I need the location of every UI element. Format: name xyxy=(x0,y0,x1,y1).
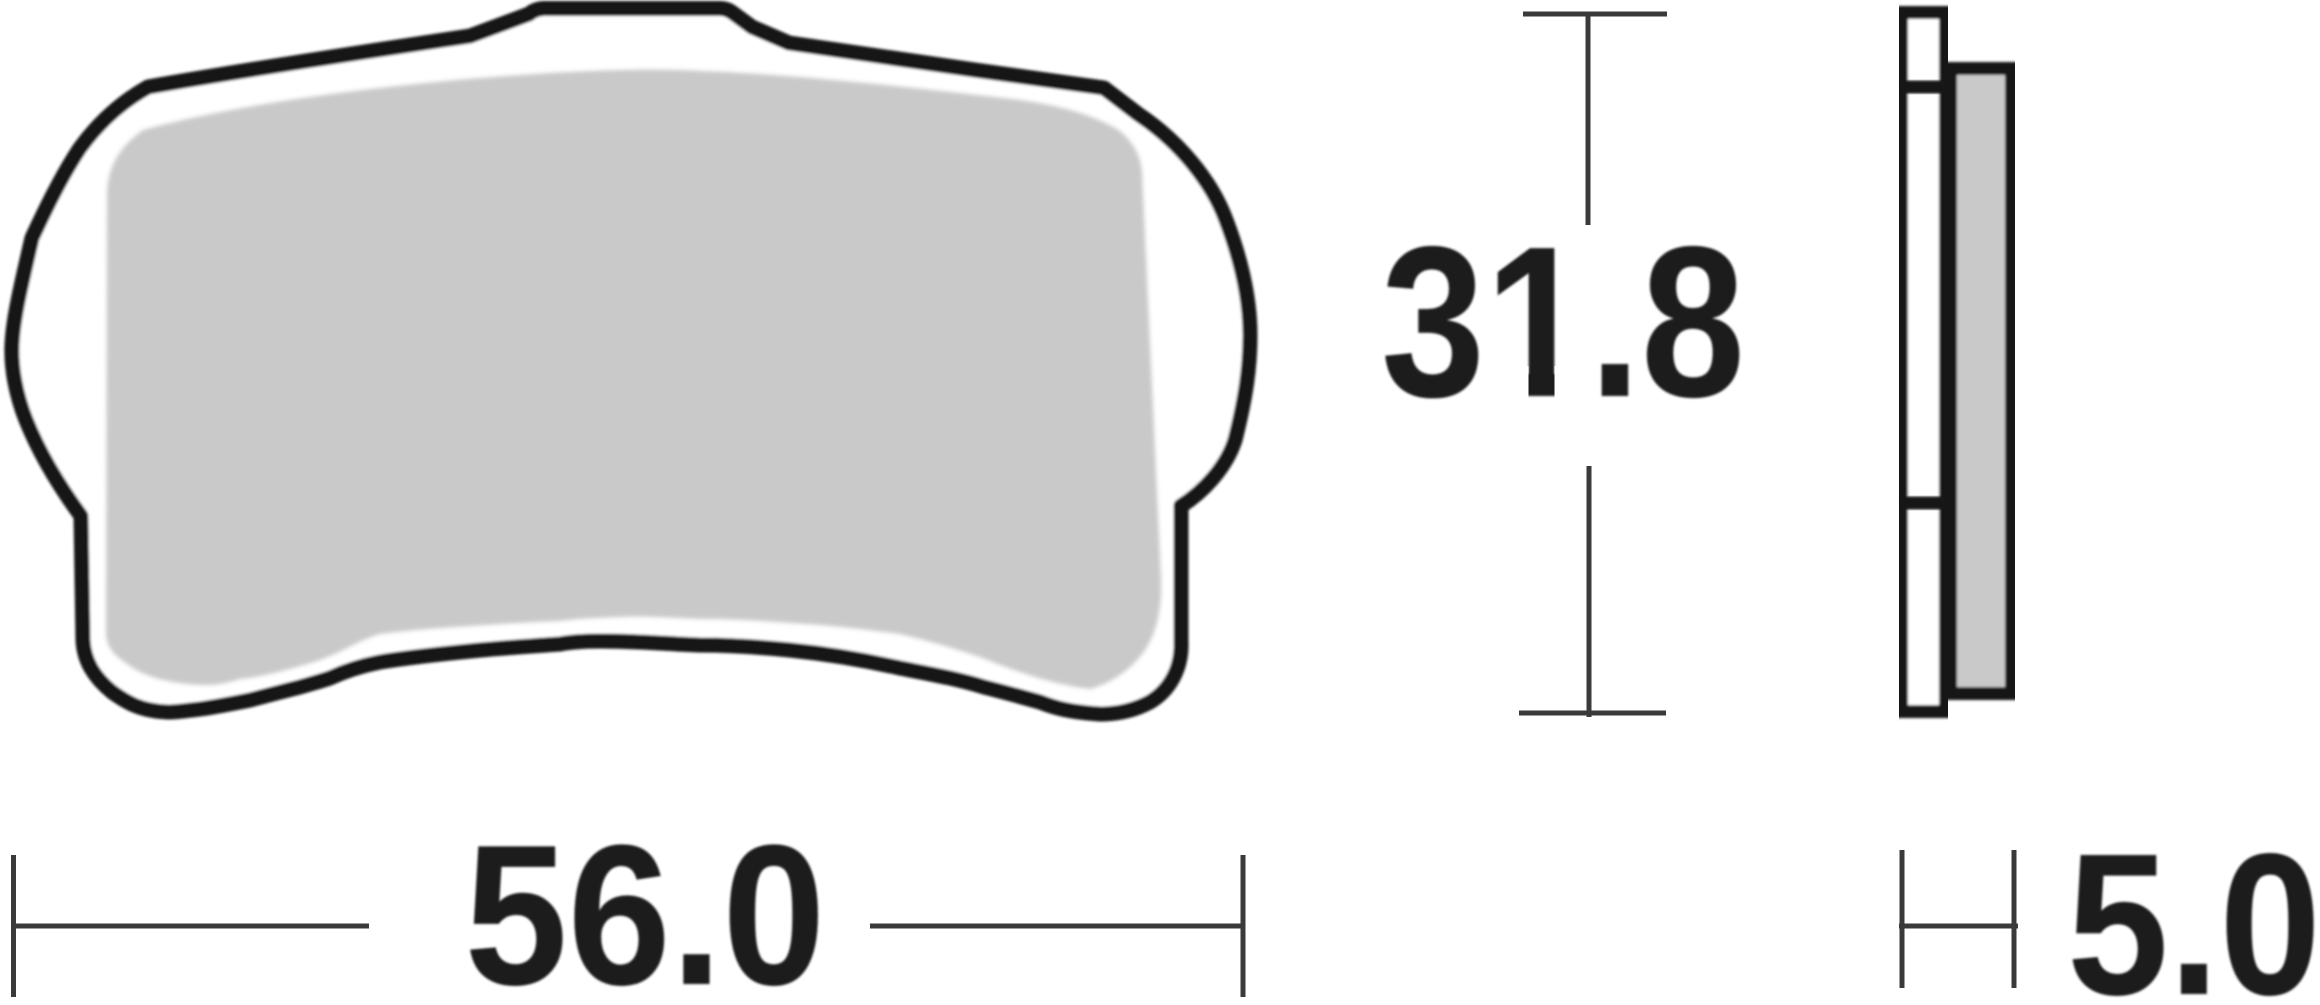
svg-text:5.0: 5.0 xyxy=(2067,811,2320,1000)
svg-text:31.8: 31.8 xyxy=(1381,201,1745,442)
svg-text:56.0: 56.0 xyxy=(465,804,826,1000)
